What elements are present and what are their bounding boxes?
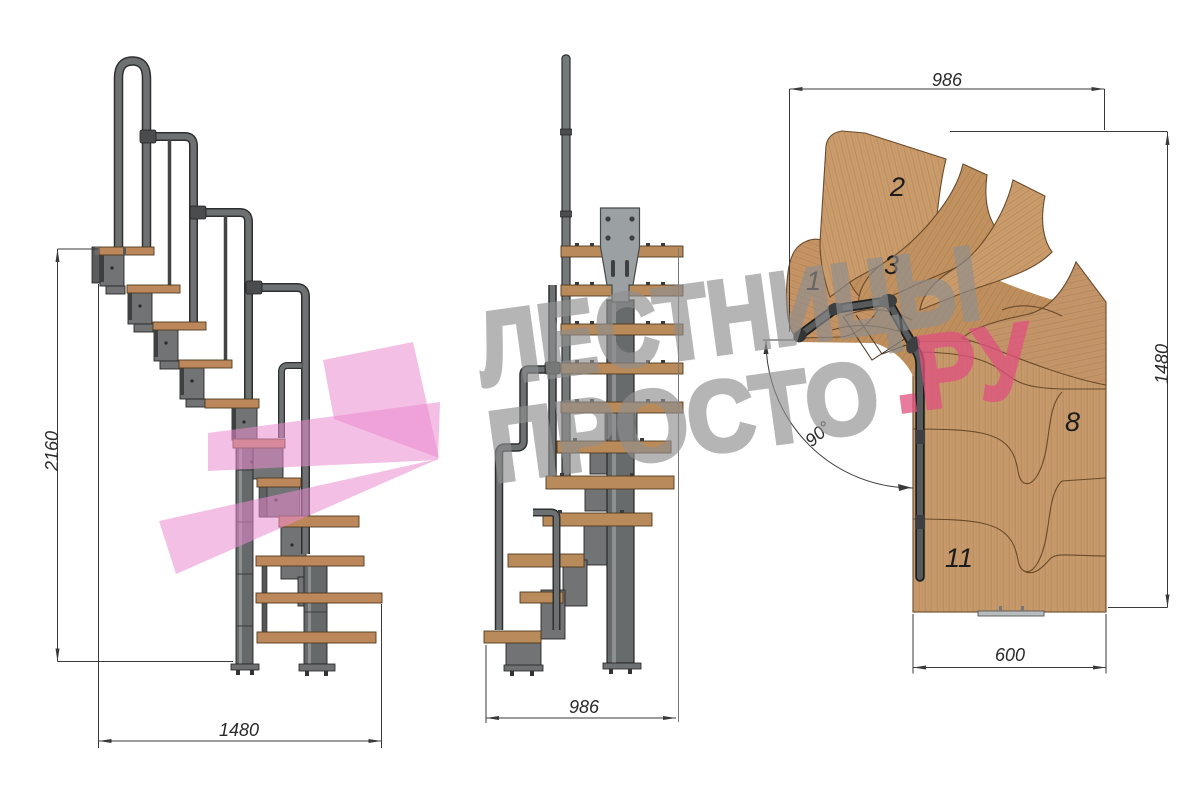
svg-text:1480: 1480 [1152, 344, 1172, 384]
svg-text:1480: 1480 [219, 720, 259, 740]
svg-text:.РУ: .РУ [884, 301, 1041, 436]
svg-text:986: 986 [932, 70, 963, 90]
svg-text:11: 11 [945, 543, 973, 573]
svg-text:8: 8 [1065, 407, 1080, 437]
svg-text:986: 986 [569, 697, 600, 717]
svg-text:2160: 2160 [42, 431, 62, 472]
svg-text:2: 2 [889, 172, 905, 202]
svg-text:600: 600 [995, 645, 1025, 665]
